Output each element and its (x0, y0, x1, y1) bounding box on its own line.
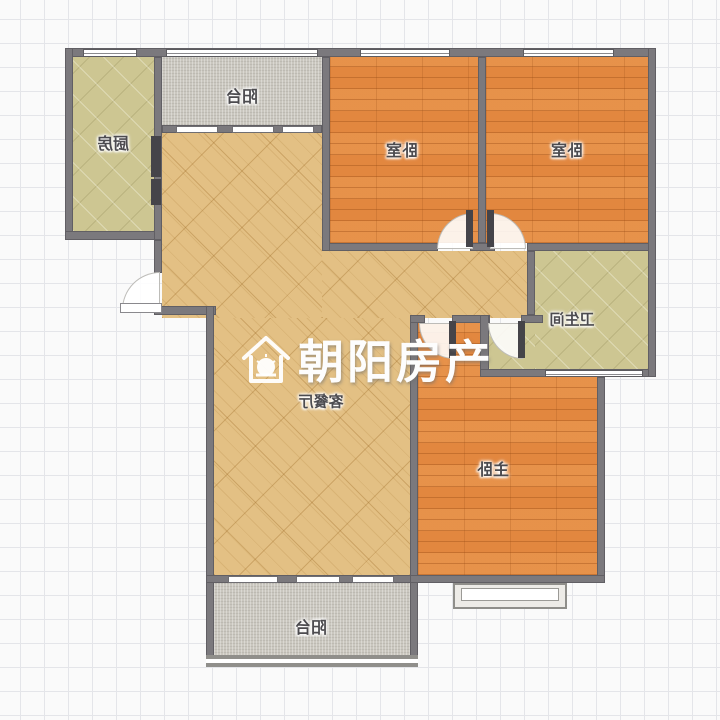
room-label-bedroom-left: 卧室 (386, 137, 418, 161)
door-leaf-bedroom-right (487, 210, 494, 247)
wall (65, 231, 162, 240)
sliding-door-panel (228, 576, 278, 583)
balcony-rail (206, 655, 418, 667)
bay-window (453, 583, 567, 609)
sliding-door-panel (176, 126, 218, 133)
kitchen-sliding-door-panel (151, 179, 161, 205)
window-kitchen (83, 49, 137, 57)
room-label-balcony-top: 阳台 (226, 83, 258, 107)
watermark: 朝阳房产 (240, 326, 494, 392)
door-leaf-bedroom-left (466, 210, 473, 247)
wall (527, 243, 656, 251)
room-label-bedroom-right: 卧室 (551, 137, 583, 161)
room-label-master-bedroom: 主卧 (477, 456, 509, 480)
wall (65, 48, 73, 240)
wall (154, 240, 162, 273)
wall (527, 251, 535, 315)
room-label-bathroom: 卫生间 (549, 309, 594, 330)
door-leaf-entrance (120, 303, 162, 313)
sliding-door-panel (296, 576, 340, 583)
wall (410, 575, 605, 583)
window-bedroom-left (360, 49, 450, 57)
wall (478, 57, 486, 243)
bay-window-inner (461, 588, 559, 601)
room-label-living-dining: 客餐厅 (298, 391, 343, 412)
wall (410, 575, 418, 662)
window-balcony-top (166, 49, 318, 57)
window-bedroom-right (523, 49, 614, 57)
watermark-brand-text: 朝阳房产 (298, 326, 494, 392)
sliding-door-panel (232, 126, 274, 133)
door-leaf-bathroom (518, 321, 525, 358)
window-bathroom (545, 370, 643, 377)
wall (322, 243, 438, 251)
house-sun-icon (240, 331, 292, 387)
room-label-balcony-bottom: 阳台 (295, 614, 327, 638)
wall (648, 48, 656, 377)
kitchen-sliding-door-panel (151, 136, 161, 177)
wall (206, 306, 214, 582)
sliding-door-panel (282, 126, 314, 133)
wall (597, 377, 605, 583)
floor-plan: 厨房 阳台 卧室 卧室 卫生间 客餐厅 主卧 阳台 朝阳房产 (0, 0, 720, 720)
sliding-door-panel (352, 576, 394, 583)
room-living-dining (322, 251, 528, 318)
wall (206, 575, 214, 662)
wall (410, 315, 425, 323)
room-label-kitchen: 厨房 (97, 130, 129, 154)
room-living-dining (162, 130, 322, 318)
wall (322, 57, 330, 251)
